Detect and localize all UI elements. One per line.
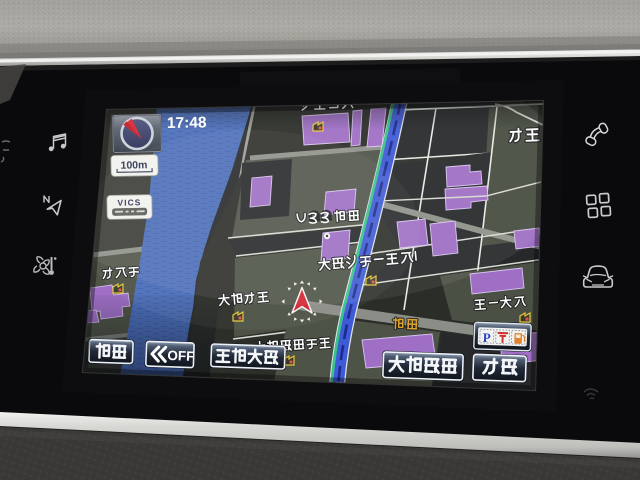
svg-text:OFF: OFF [167,348,195,364]
svg-text:P: P [483,330,492,345]
